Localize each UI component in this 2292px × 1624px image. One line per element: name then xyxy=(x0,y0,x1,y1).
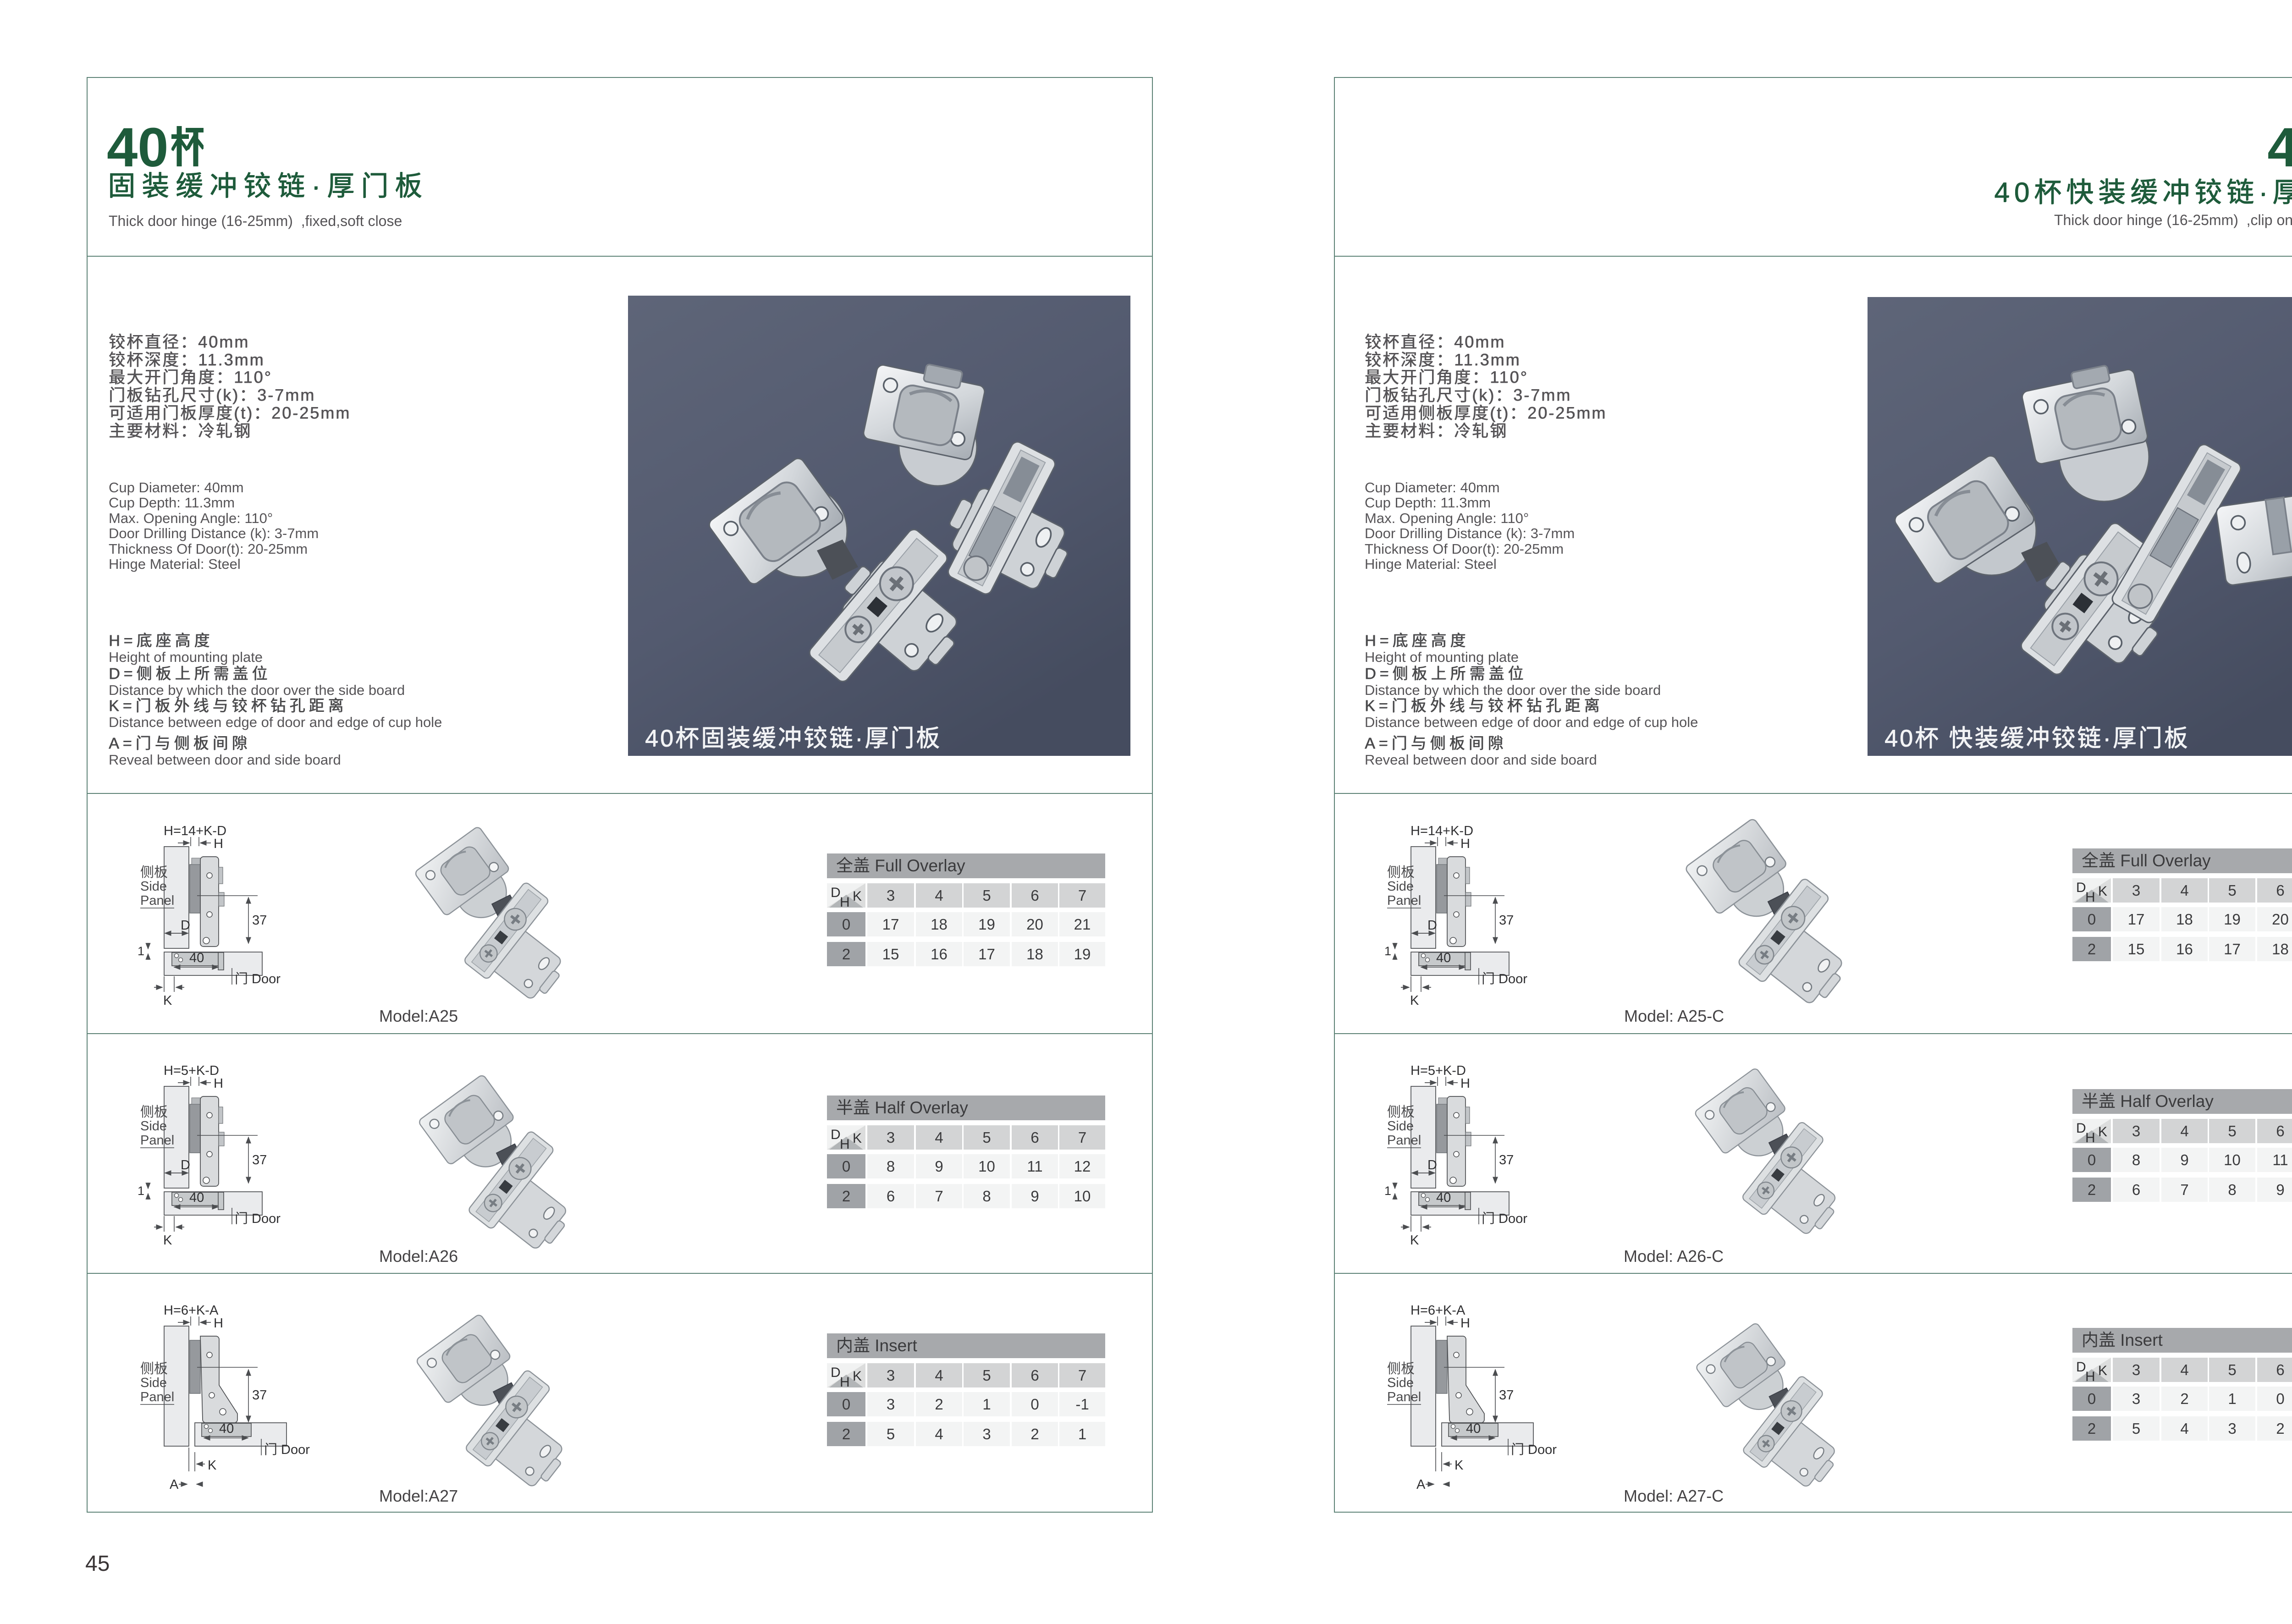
svg-text:37: 37 xyxy=(252,1388,267,1403)
svg-text:K: K xyxy=(1410,993,1419,1008)
svg-text:门 Door: 门 Door xyxy=(1511,1442,1557,1457)
svg-text:37: 37 xyxy=(1499,1153,1514,1167)
svg-text:D: D xyxy=(181,918,190,933)
svg-text:1: 1 xyxy=(1384,1184,1391,1198)
svg-text:40: 40 xyxy=(219,1421,234,1436)
svg-text:H: H xyxy=(1460,837,1470,851)
svg-text:Panel: Panel xyxy=(1387,1133,1421,1148)
svg-text:37: 37 xyxy=(1499,913,1514,928)
svg-text:K: K xyxy=(208,1458,217,1473)
svg-text:H: H xyxy=(214,837,223,851)
svg-text:40: 40 xyxy=(189,1190,204,1205)
svg-text:37: 37 xyxy=(252,1153,267,1167)
svg-text:1: 1 xyxy=(138,944,144,958)
svg-text:H: H xyxy=(214,1076,223,1091)
svg-text:H: H xyxy=(1460,1076,1470,1091)
svg-text:H=6+K-A: H=6+K-A xyxy=(1410,1303,1466,1318)
svg-text:侧板: 侧板 xyxy=(140,1105,168,1120)
svg-text:侧板: 侧板 xyxy=(140,865,168,880)
svg-text:H=5+K-D: H=5+K-D xyxy=(1410,1063,1466,1078)
svg-text:Side: Side xyxy=(1387,879,1414,894)
svg-text:H: H xyxy=(840,1375,850,1387)
svg-text:Panel: Panel xyxy=(140,1133,174,1148)
svg-text:Side: Side xyxy=(140,879,167,894)
svg-text:A: A xyxy=(1416,1477,1426,1492)
svg-text:H: H xyxy=(840,895,850,908)
svg-text:K: K xyxy=(2098,1124,2107,1140)
svg-text:D: D xyxy=(181,1158,190,1173)
svg-text:K: K xyxy=(2098,884,2107,899)
svg-text:侧板: 侧板 xyxy=(1387,1361,1415,1376)
svg-text:D: D xyxy=(831,885,841,900)
svg-text:K: K xyxy=(1410,1233,1419,1248)
svg-text:Side: Side xyxy=(140,1119,167,1134)
svg-text:K: K xyxy=(853,1369,862,1384)
svg-text:1: 1 xyxy=(138,1184,144,1198)
svg-text:D: D xyxy=(831,1127,841,1142)
svg-text:H: H xyxy=(214,1316,223,1331)
svg-text:H=5+K-D: H=5+K-D xyxy=(164,1063,219,1078)
svg-text:Side: Side xyxy=(1387,1119,1414,1134)
svg-text:Panel: Panel xyxy=(1387,893,1421,908)
svg-text:D: D xyxy=(831,1365,841,1380)
svg-text:K: K xyxy=(853,1131,862,1146)
svg-text:K: K xyxy=(853,889,862,904)
svg-text:门 Door: 门 Door xyxy=(1482,971,1527,986)
svg-text:H: H xyxy=(2085,890,2095,903)
svg-text:D: D xyxy=(2076,880,2086,895)
svg-text:40: 40 xyxy=(1466,1421,1481,1436)
svg-text:37: 37 xyxy=(252,913,267,928)
svg-text:Panel: Panel xyxy=(140,1390,174,1404)
svg-text:Panel: Panel xyxy=(1387,1390,1421,1404)
svg-text:K: K xyxy=(163,1233,172,1248)
svg-text:K: K xyxy=(2098,1363,2107,1378)
svg-text:37: 37 xyxy=(1499,1388,1514,1403)
svg-text:D: D xyxy=(2076,1360,2086,1375)
svg-text:Side: Side xyxy=(140,1376,167,1390)
svg-text:门 Door: 门 Door xyxy=(264,1442,310,1457)
svg-text:门 Door: 门 Door xyxy=(1482,1211,1527,1226)
svg-text:H: H xyxy=(1460,1316,1470,1331)
svg-text:1: 1 xyxy=(1384,944,1391,958)
svg-text:门 Door: 门 Door xyxy=(235,971,281,986)
svg-text:H: H xyxy=(2085,1130,2095,1143)
svg-text:D: D xyxy=(1427,1158,1437,1173)
svg-text:40: 40 xyxy=(1436,951,1451,965)
svg-text:K: K xyxy=(163,993,172,1008)
svg-text:D: D xyxy=(2076,1121,2086,1136)
svg-text:侧板: 侧板 xyxy=(1387,865,1415,880)
svg-text:40: 40 xyxy=(189,951,204,965)
svg-text:侧板: 侧板 xyxy=(140,1361,168,1376)
svg-text:门 Door: 门 Door xyxy=(235,1211,281,1226)
svg-text:Side: Side xyxy=(1387,1376,1414,1390)
svg-text:A: A xyxy=(170,1477,179,1492)
svg-text:H=6+K-A: H=6+K-A xyxy=(164,1303,219,1318)
svg-text:H: H xyxy=(2085,1369,2095,1382)
svg-text:侧板: 侧板 xyxy=(1387,1105,1415,1120)
svg-text:H: H xyxy=(840,1137,850,1150)
svg-text:K: K xyxy=(1455,1458,1464,1473)
svg-text:Panel: Panel xyxy=(140,893,174,908)
svg-text:D: D xyxy=(1427,918,1437,933)
svg-text:40: 40 xyxy=(1436,1190,1451,1205)
